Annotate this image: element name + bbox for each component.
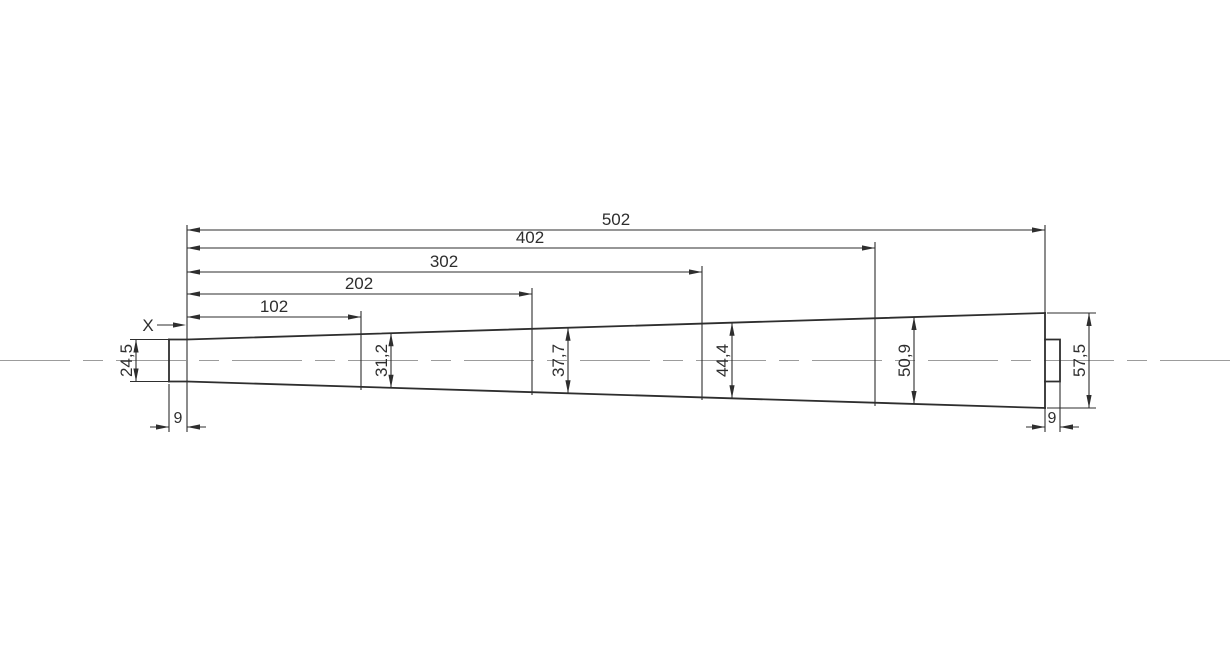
length-dimensions: 502 402 302 202 102: [187, 210, 1045, 320]
arrow-down-icon: [911, 391, 916, 404]
arrow-left-icon: [187, 245, 200, 250]
x-marker: X: [142, 316, 186, 335]
arrow-up-icon: [911, 317, 916, 330]
arrow-up-icon: [729, 323, 734, 336]
dim-label-dia-31-2: 31,2: [372, 344, 391, 377]
dim-label-402: 402: [516, 228, 544, 247]
dim-label-left-9: 9: [174, 410, 183, 427]
end-width-dimensions: 9 9: [150, 410, 1079, 430]
arrow-left-icon: [187, 291, 200, 296]
dim-label-102: 102: [260, 297, 288, 316]
arrow-left-icon: [187, 269, 200, 274]
arrow-left-icon: [187, 227, 200, 232]
technical-drawing-page: 502 402 302 202 102 24,5 31,2 37,7: [0, 0, 1231, 654]
dim-label-dia-44-4: 44,4: [713, 344, 732, 377]
arrow-right-icon: [519, 291, 532, 296]
arrow-up-icon: [565, 328, 570, 341]
arrow-right-icon: [156, 424, 169, 429]
arrow-right-icon: [1032, 424, 1045, 429]
arrow-left-icon: [1060, 424, 1073, 429]
dim-label-302: 302: [430, 252, 458, 271]
dim-label-right-9: 9: [1048, 410, 1057, 427]
arrow-right-icon: [862, 245, 875, 250]
arrow-right-icon: [1032, 227, 1045, 232]
extension-lines: [130, 225, 1096, 432]
arrow-left-icon: [187, 424, 200, 429]
dim-label-dia-50-9: 50,9: [895, 344, 914, 377]
arrow-down-icon: [565, 380, 570, 393]
arrow-right-icon: [689, 269, 702, 274]
dim-label-dia-24-5: 24,5: [117, 344, 136, 377]
x-marker-label: X: [142, 316, 153, 335]
arrow-up-icon: [1086, 313, 1091, 326]
dim-label-202: 202: [345, 274, 373, 293]
dim-label-dia-37-7: 37,7: [549, 344, 568, 377]
arrow-right-icon: [348, 314, 361, 319]
arrow-down-icon: [1086, 395, 1091, 408]
dim-label-502: 502: [602, 210, 630, 229]
dim-label-dia-57-5: 57,5: [1070, 344, 1089, 377]
arrow-left-icon: [187, 314, 200, 319]
technical-drawing-canvas: 502 402 302 202 102 24,5 31,2 37,7: [0, 0, 1231, 654]
arrow-right-icon: [173, 322, 186, 327]
arrow-down-icon: [729, 385, 734, 398]
